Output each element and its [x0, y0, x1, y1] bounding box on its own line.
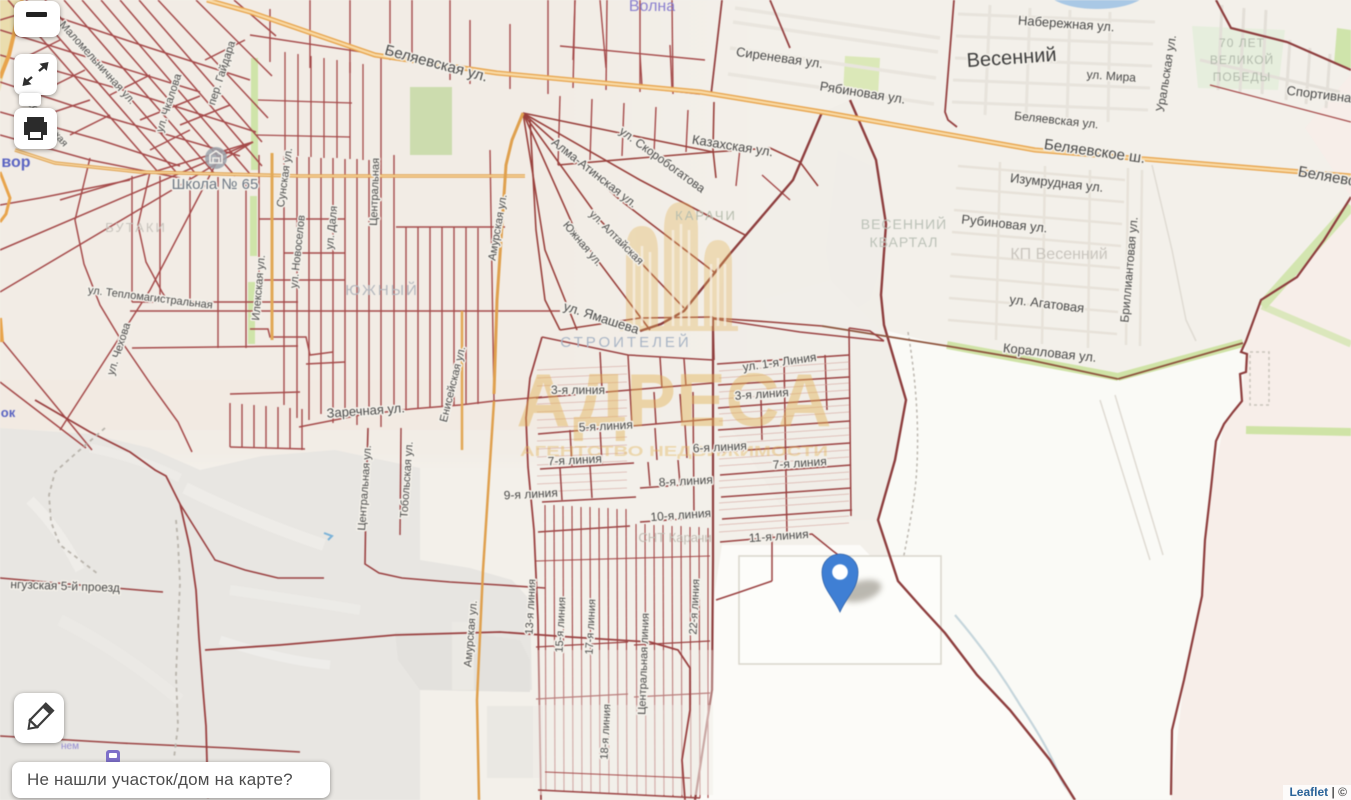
svg-text:ЮЖНЫЙ: ЮЖНЫЙ — [345, 281, 419, 299]
svg-text:Школа № 65: Школа № 65 — [172, 176, 259, 193]
svg-text:5-я линия: 5-я линия — [578, 418, 633, 435]
svg-text:ВЕСЕННИЙ: ВЕСЕННИЙ — [861, 215, 947, 232]
svg-text:6-я линия: 6-я линия — [692, 439, 747, 456]
svg-text:3-я линия: 3-я линия — [551, 383, 605, 397]
svg-text:КАРАЧИ: КАРАЧИ — [675, 208, 737, 223]
svg-text:ПОБЕДЫ: ПОБЕДЫ — [1213, 70, 1272, 84]
svg-text:ок: ок — [1, 405, 16, 420]
svg-text:8-я линия: 8-я линия — [658, 473, 713, 490]
svg-text:АДРЕСА: АДРЕСА — [517, 358, 832, 442]
svg-text:7-я линия: 7-я линия — [547, 452, 602, 469]
svg-text:ВЕЛИКОЙ: ВЕЛИКОЙ — [1210, 52, 1274, 67]
svg-text:КП Весенний: КП Весенний — [1010, 246, 1107, 263]
svg-text:СНТ Карачи: СНТ Карачи — [638, 530, 711, 545]
svg-text:СТРОИТЕЛЕЙ: СТРОИТЕЛЕЙ — [560, 333, 691, 351]
svg-text:КВАРТАЛ: КВАРТАЛ — [870, 234, 939, 250]
svg-text:Волна: Волна — [629, 0, 675, 15]
svg-text:9-я линия: 9-я линия — [503, 486, 558, 503]
svg-text:БУТАКИ: БУТАКИ — [105, 220, 167, 235]
svg-text:70 ЛЕТ: 70 ЛЕТ — [1219, 36, 1265, 50]
svg-text:вор: вор — [1, 154, 30, 171]
svg-text:Центральная: Центральная — [368, 158, 382, 226]
